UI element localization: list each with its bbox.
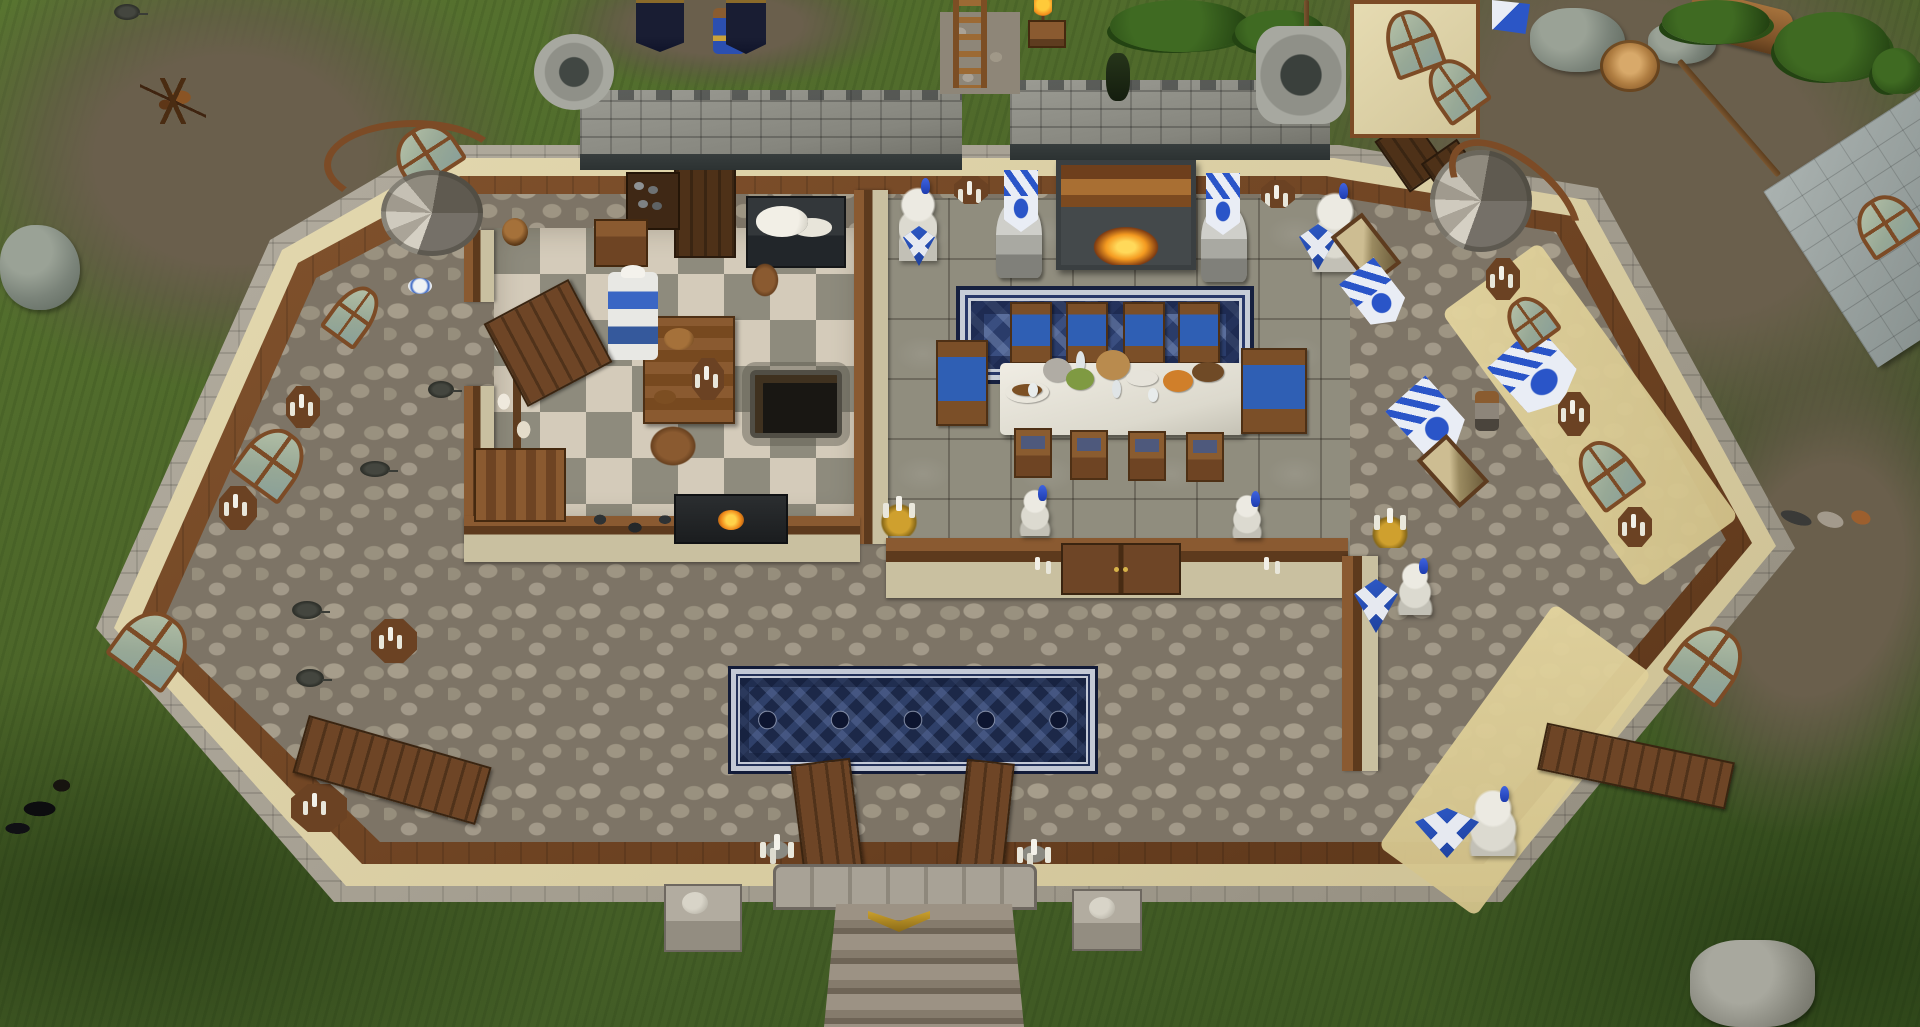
- candelabra-dining-southeast: [1369, 504, 1411, 548]
- dining-chair-south-3: [1128, 431, 1166, 481]
- food-glass-1: [1028, 383, 1038, 397]
- battlement-turret-right: [1256, 26, 1346, 124]
- npc-rat-corridor-3[interactable]: [292, 601, 322, 619]
- flag-blue-white: [1492, 0, 1530, 34]
- blue-plate-on-floor: [408, 278, 432, 294]
- kitchen-bench: [474, 448, 566, 522]
- game-viewport: [0, 0, 1920, 1027]
- banner-stand-dark-2: [726, 0, 766, 54]
- kitchen-cooking-range[interactable]: [674, 494, 788, 544]
- food-wine-bottle-2: [1112, 380, 1121, 398]
- rock-top-left-corner: [0, 225, 80, 310]
- food-cake-green: [1066, 368, 1094, 390]
- stair-rail-nw: [324, 120, 504, 210]
- kitchen-stool-south: [644, 421, 702, 471]
- signpost-by-gate: [1028, 20, 1066, 48]
- lamp-pedestal-right: [1072, 889, 1142, 951]
- candles-hall-north-wall-left: [1024, 553, 1060, 577]
- water-bucket: [502, 218, 528, 246]
- npc-rat-top-left[interactable]: [114, 4, 140, 20]
- rock-pile-bottom-right: [1690, 940, 1815, 1027]
- npc-rat-corridor-1[interactable]: [428, 381, 454, 398]
- wall-torch-bracket: [1106, 53, 1130, 101]
- candelabra-dining-southwest: [877, 492, 921, 536]
- dining-fireplace[interactable]: [1056, 160, 1196, 270]
- armour-knight-walking-1[interactable]: [1014, 488, 1056, 536]
- dining-chair-south-2: [1070, 430, 1108, 480]
- bush-top-1: [1110, 0, 1250, 52]
- bush-top-right-3: [1872, 48, 1920, 94]
- armour-knight-walking-2[interactable]: [1224, 494, 1270, 538]
- banner-north-wall-left: [1004, 170, 1038, 232]
- dining-chair-north-1: [1010, 302, 1052, 364]
- dining-chair-north-4: [1178, 302, 1220, 364]
- food-plates-stack: [1126, 370, 1158, 386]
- tree-stump[interactable]: [1600, 40, 1660, 92]
- wall-ladder[interactable]: [953, 0, 987, 88]
- kitchen-trapdoor-open[interactable]: [750, 370, 842, 438]
- food-chocolate-log: [1192, 362, 1224, 382]
- entrance-porch-arch: [773, 864, 1037, 910]
- dining-hall-double-doors[interactable]: [1061, 543, 1181, 595]
- sconce-ne-wall-2: [1558, 392, 1590, 436]
- dining-chair-west-end: [936, 340, 988, 426]
- dining-chair-north-3: [1123, 302, 1165, 364]
- kitchen-stool-north: [748, 259, 782, 301]
- dining-chair-east-end: [1241, 348, 1307, 434]
- lamp-pedestal-left: [664, 884, 742, 952]
- entrance-steps: [824, 904, 1024, 1027]
- kitchen-pans-counter: [580, 510, 680, 542]
- food-pie-orange: [1163, 370, 1193, 392]
- battlement-wall-left: [580, 90, 962, 154]
- food-roast-chicken: [1096, 350, 1130, 380]
- battlement-turret-left: [534, 34, 614, 110]
- npc-giant-spider[interactable]: [140, 78, 206, 124]
- sconce-west-wall-4: [291, 784, 347, 832]
- npc-dark-figure[interactable]: [0, 766, 88, 844]
- npc-rat-corridor-2[interactable]: [360, 461, 390, 477]
- kitchen-sink[interactable]: [746, 196, 846, 268]
- great-hall-runner-rug: [728, 666, 1098, 774]
- food-glass-2: [1148, 388, 1158, 402]
- npc-cook[interactable]: [608, 272, 658, 360]
- dining-chair-south-1: [1014, 428, 1052, 478]
- torch-by-gate: [1034, 0, 1052, 22]
- candles-hall-north-wall-right: [1253, 553, 1291, 577]
- npc-rat-corridor-4[interactable]: [296, 669, 324, 687]
- armour-knight-walking-3[interactable]: [1391, 561, 1439, 615]
- banner-stand-dark-1: [636, 0, 684, 52]
- banner-north-wall-right: [1206, 173, 1240, 235]
- kitchen-crate: [594, 219, 648, 267]
- wall-kitchen-dining-divider: [854, 190, 888, 544]
- dining-chair-south-4: [1186, 432, 1224, 482]
- bush-top-right-1: [1662, 0, 1770, 44]
- npc-ne-corridor[interactable]: [1475, 391, 1499, 431]
